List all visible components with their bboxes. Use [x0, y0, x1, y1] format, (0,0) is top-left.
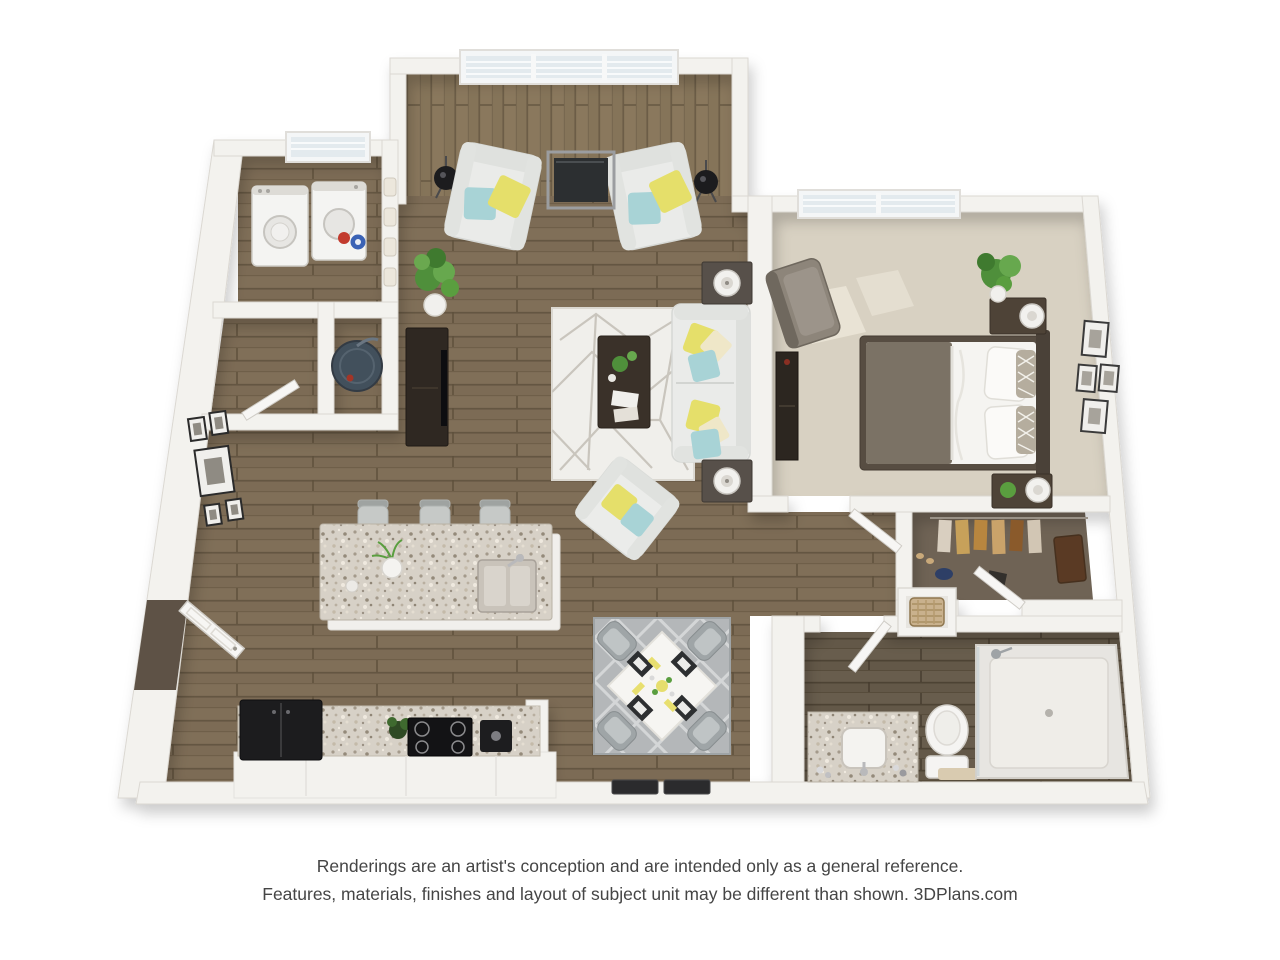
wall-sitting-right: [732, 58, 748, 212]
tv: [441, 350, 447, 426]
garment-on-floor: [935, 568, 953, 580]
nightstand: [992, 474, 1052, 508]
side-table: [548, 152, 614, 208]
shower: [976, 645, 1128, 778]
blanket: [866, 342, 952, 464]
floor-plan-rendering: Renderings are an artist's conception an…: [0, 0, 1280, 960]
headboard: [1036, 330, 1050, 476]
bed: [860, 330, 1050, 476]
small-plant: [1000, 482, 1016, 498]
end-table: [702, 262, 752, 304]
island-sink: [478, 554, 536, 612]
refrigerator: [240, 700, 322, 760]
wall-bedroom-bottom-left: [748, 496, 788, 512]
wall-closet-bottom-right: [1022, 600, 1122, 616]
bedroom-window: [798, 190, 960, 218]
water-heater-valve: [347, 375, 354, 382]
laundry-window: [286, 132, 370, 162]
kitchen-island: [320, 524, 560, 630]
wall-closets-bottom: [202, 414, 398, 430]
disclaimer-line-2: Features, materials, finishes and layout…: [262, 884, 1018, 904]
disclaimer-line-1: Renderings are an artist's conception an…: [317, 856, 963, 876]
accent-pillow: [1016, 350, 1036, 398]
tv-console: [406, 328, 448, 446]
linen-nook: [898, 588, 956, 636]
bedroom-dresser: [776, 352, 798, 460]
washer: [252, 186, 308, 266]
accent-pillow: [1016, 406, 1036, 454]
teal-pillow: [690, 428, 722, 460]
centerpiece: [656, 680, 668, 692]
floor-plan-page: Renderings are an artist's conception an…: [0, 0, 1280, 960]
cooktop: [408, 718, 472, 756]
nightstand: [990, 298, 1046, 334]
toilet: [926, 705, 968, 778]
bath-mat: [938, 768, 978, 780]
wall-bedroom-bottom-right: [850, 496, 1110, 512]
dining-area: [594, 618, 730, 754]
coffee-maker: [480, 720, 512, 752]
wicker-basket: [910, 598, 944, 626]
storage-box: [1054, 535, 1087, 584]
sofa: [672, 304, 750, 462]
sitting-area-window: [460, 50, 678, 84]
wall-bath-left: [772, 616, 804, 782]
end-table: [702, 460, 752, 502]
wall-laundry-bottom: [213, 302, 398, 318]
coffee-table: [598, 336, 650, 428]
shower-drain: [1045, 709, 1053, 717]
kitchen-counter: [234, 700, 556, 798]
vanity: [808, 712, 918, 782]
